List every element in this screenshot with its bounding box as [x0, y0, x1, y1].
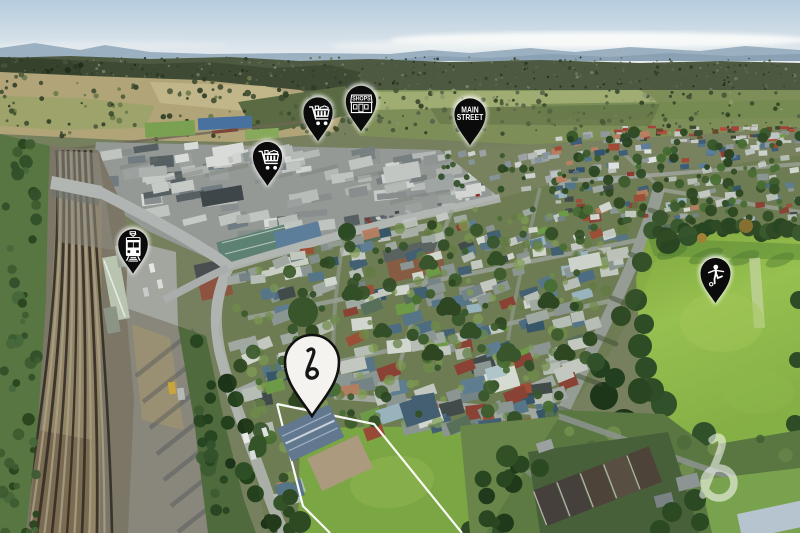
svg-text:STREET: STREET	[457, 113, 484, 122]
svg-text:SHOPS: SHOPS	[352, 96, 371, 103]
